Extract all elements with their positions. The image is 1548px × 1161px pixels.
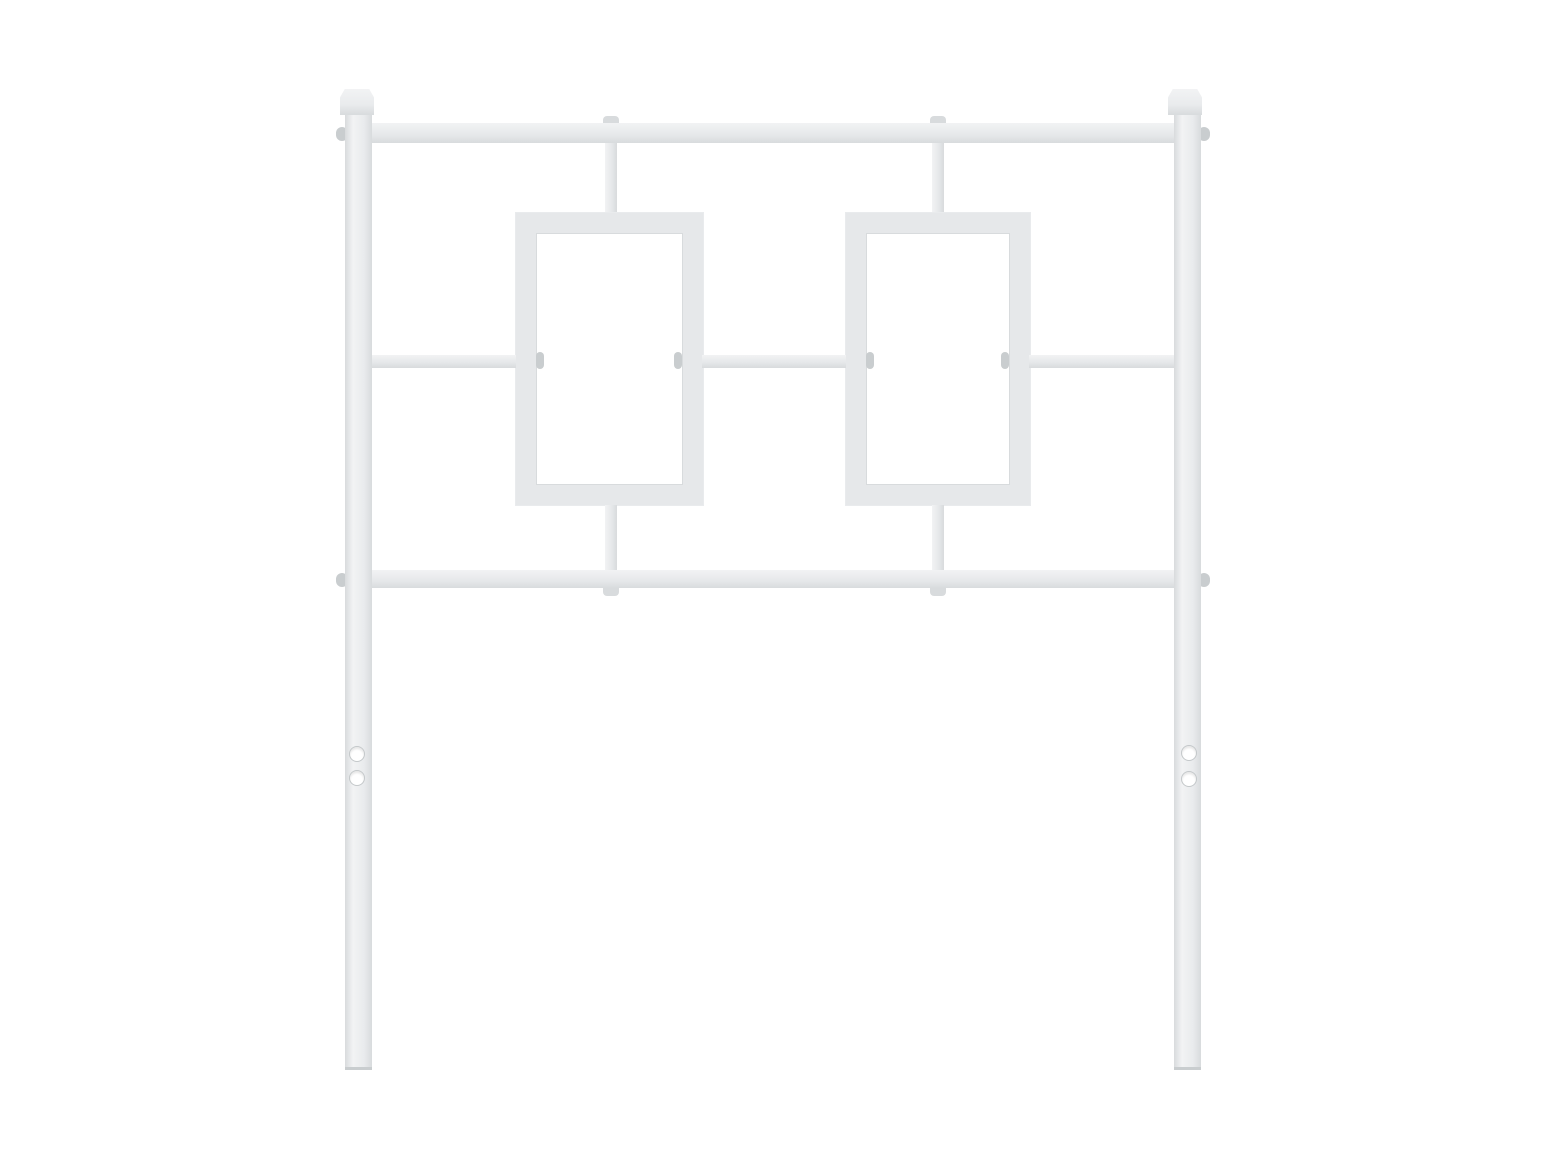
middle-rail-left-segment: [372, 355, 516, 368]
top-rail: [372, 123, 1174, 143]
right-top-connector: [932, 143, 944, 214]
left-top-connector: [605, 143, 617, 214]
headboard-product-image: [0, 0, 1548, 1161]
bottom-rail-right-joint-cap: [930, 587, 946, 596]
left-leg-lower-mounting-hole: [349, 770, 365, 786]
bottom-rail: [372, 570, 1174, 588]
right-finial-cap: [1168, 89, 1202, 115]
left-bottom-connector: [605, 505, 617, 571]
right-frame-inner-left-rail-stub: [866, 352, 874, 369]
left-leg-upper-mounting-hole: [349, 746, 365, 762]
left-post: [345, 112, 372, 1070]
right-frame-inner-right-rail-stub: [1001, 352, 1009, 369]
left-frame-inner-left-rail-stub: [536, 352, 544, 369]
right-bottom-connector: [932, 505, 944, 571]
middle-rail-right-segment: [1029, 355, 1174, 368]
left-finial-cap: [340, 89, 374, 115]
bottom-rail-left-joint-cap: [603, 587, 619, 596]
middle-rail-center-segment: [702, 355, 846, 368]
right-post: [1174, 112, 1201, 1070]
right-leg-lower-mounting-hole: [1181, 771, 1197, 787]
right-leg-upper-mounting-hole: [1181, 745, 1197, 761]
left-frame-inner-right-rail-stub: [674, 352, 682, 369]
